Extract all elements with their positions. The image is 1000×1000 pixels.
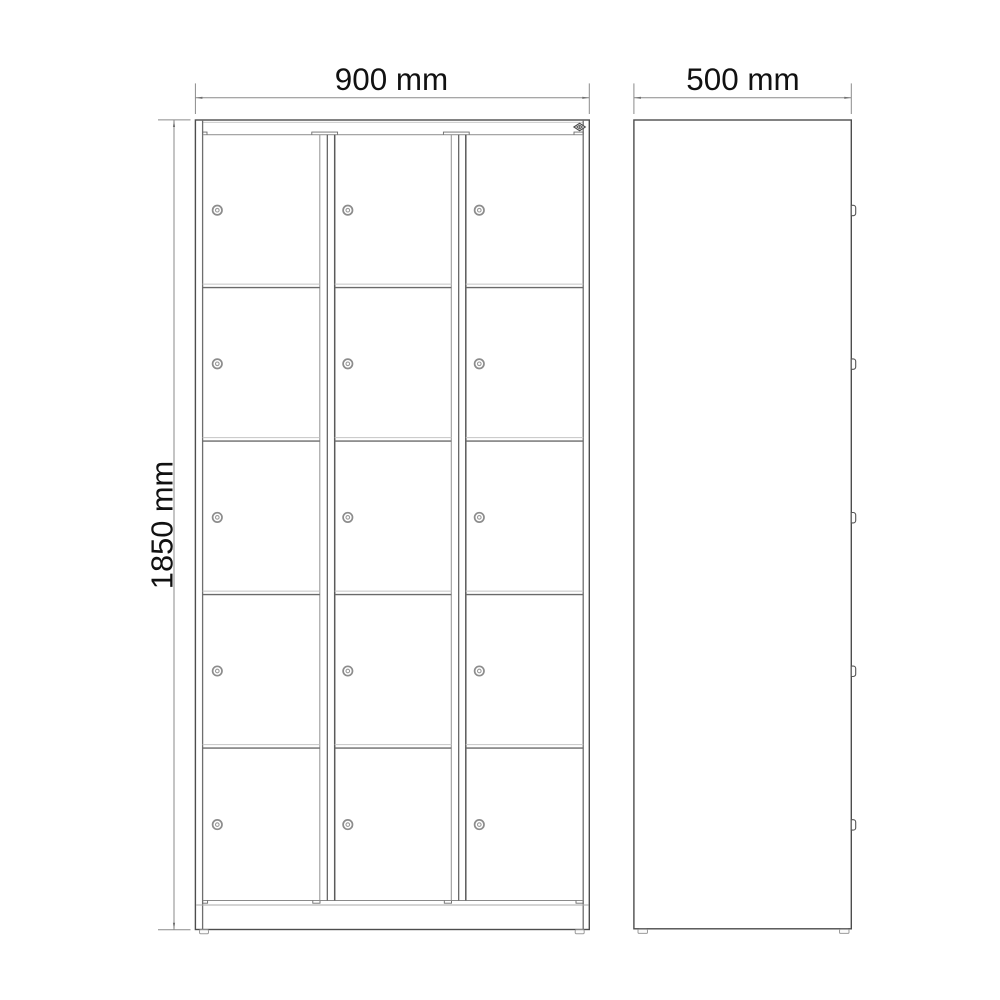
svg-text:900 mm: 900 mm [335,62,448,97]
svg-text:500 mm: 500 mm [686,62,799,97]
